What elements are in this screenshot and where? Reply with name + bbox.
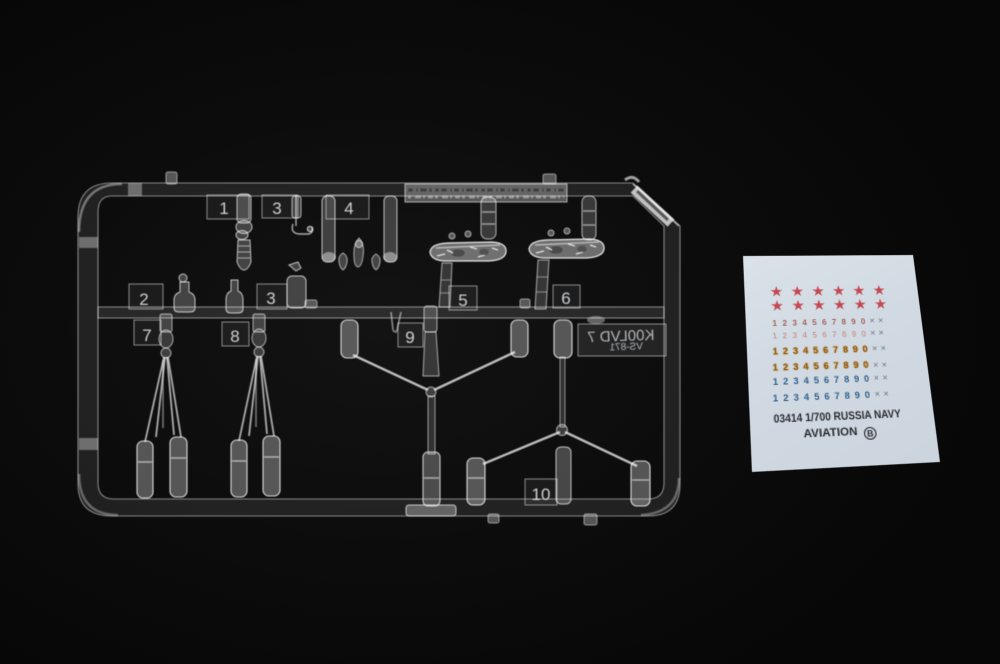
svg-text:8: 8 [230, 327, 239, 346]
svg-text:VS-871: VS-871 [609, 341, 643, 353]
svg-text:2: 2 [139, 290, 148, 309]
svg-text:10: 10 [532, 485, 551, 504]
svg-text:6: 6 [561, 289, 570, 308]
svg-text:5: 5 [458, 291, 467, 310]
svg-text:9: 9 [405, 328, 414, 347]
svg-text:4: 4 [344, 199, 353, 218]
svg-text:7: 7 [142, 326, 151, 345]
svg-text:3: 3 [266, 289, 275, 308]
svg-text:3: 3 [272, 199, 281, 218]
svg-text:1: 1 [219, 199, 228, 218]
